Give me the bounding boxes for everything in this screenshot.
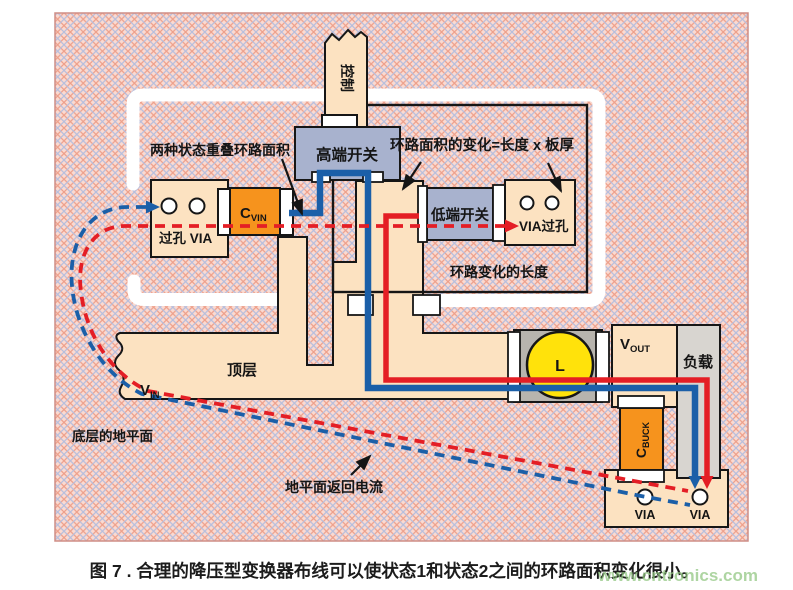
input-via-label: 过孔 VIA	[159, 230, 213, 246]
low-side-switch-label: 低端开关	[430, 206, 489, 224]
bottom-ground-plane-label: 底层的地平面	[72, 428, 153, 444]
output-via-pad-box	[505, 180, 575, 245]
inductor-right-pad	[596, 332, 609, 402]
via-hole-icon	[546, 197, 559, 210]
via-bottom-left-label: VIA	[635, 508, 656, 522]
loop-area-change-label: 环路面积的变化=长度 x 板厚	[390, 136, 575, 154]
switch-pad	[418, 186, 427, 242]
load-block	[677, 325, 720, 478]
figure-7-buck-converter-layout-diagram: 两种状态重叠环路面积 环路面积的变化=长度 x 板厚 环路变化的长度 顶层 底层…	[0, 0, 793, 590]
via-hole-icon	[521, 197, 534, 210]
watermark: www.cntronics.com	[597, 566, 758, 585]
loop-change-length-label: 环路变化的长度	[450, 264, 549, 280]
via-hole-icon	[190, 199, 205, 214]
output-via-label: VIA过孔	[519, 218, 569, 234]
control-label: 控制	[339, 64, 355, 92]
via-hole-icon	[162, 199, 177, 214]
high-side-switch-label: 高端开关	[316, 145, 379, 164]
cbuck-top-pad	[618, 396, 664, 408]
via-bottom-right-label: VIA	[690, 508, 711, 522]
switch-pad	[493, 185, 505, 241]
overlap-loop-area-label: 两种状态重叠环路面积	[150, 142, 290, 158]
via-hole-icon	[693, 490, 708, 505]
load-label: 负载	[683, 353, 713, 371]
diagram-canvas: 两种状态重叠环路面积 环路面积的变化=长度 x 板厚 环路变化的长度 顶层 底层…	[0, 0, 793, 590]
column-pad	[413, 295, 440, 315]
inductor-label: L	[555, 358, 565, 375]
control-pad	[322, 115, 357, 127]
inductor-left-pad	[508, 332, 520, 402]
cvin-capacitor	[230, 188, 280, 235]
top-layer-label: 顶层	[227, 362, 257, 379]
ground-return-current-label: 地平面返回电流	[285, 479, 383, 495]
